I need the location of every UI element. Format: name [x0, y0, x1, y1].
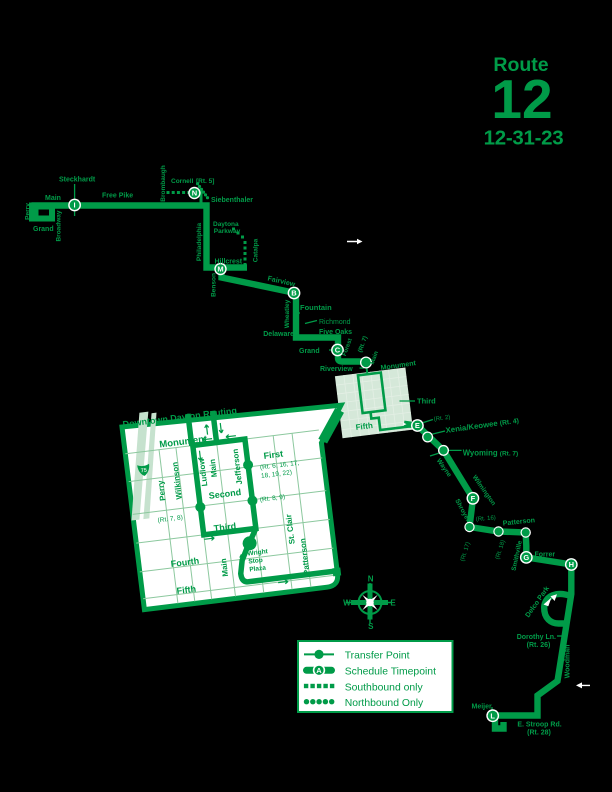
svg-text:Dorothy Ln.: Dorothy Ln.: [517, 634, 556, 641]
svg-text:N: N: [192, 189, 197, 198]
svg-text:S: S: [368, 622, 374, 631]
svg-text:M: M: [217, 265, 223, 274]
svg-text:Catalpa: Catalpa: [252, 238, 259, 262]
svg-text:Free Pike: Free Pike: [102, 193, 133, 200]
svg-text:[Rt. 5]: [Rt. 5]: [196, 178, 214, 185]
svg-text:Brombaugh: Brombaugh: [160, 165, 167, 202]
svg-text:A: A: [316, 666, 322, 675]
svg-text:I: I: [74, 201, 76, 210]
svg-text:W: W: [343, 599, 351, 608]
svg-text:Perry: Perry: [24, 203, 31, 220]
svg-text:Steckhardt: Steckhardt: [59, 177, 96, 184]
svg-text:Wyoming (Rt. 7): Wyoming (Rt. 7): [463, 449, 519, 458]
svg-text:Meijer: Meijer: [472, 704, 493, 711]
svg-text:Wheatley: Wheatley: [284, 299, 291, 328]
svg-text:Fountain: Fountain: [300, 303, 332, 312]
svg-text:B: B: [291, 289, 297, 298]
svg-text:12: 12: [491, 68, 552, 130]
svg-text:E. Stroop Rd.: E. Stroop Rd.: [517, 722, 561, 729]
svg-text:(Rt. 28): (Rt. 28): [527, 730, 551, 737]
svg-text:Daytona: Daytona: [213, 221, 239, 228]
svg-text:L: L: [490, 711, 495, 720]
svg-text:Benson: Benson: [210, 273, 217, 297]
svg-text:Parkway: Parkway: [214, 228, 241, 235]
svg-text:H: H: [569, 560, 574, 569]
svg-text:G: G: [523, 553, 529, 562]
svg-text:Hillcrest: Hillcrest: [215, 259, 243, 266]
svg-text:E: E: [390, 599, 396, 608]
svg-text:Richmond: Richmond: [319, 319, 351, 326]
svg-text:Broadway: Broadway: [55, 210, 62, 241]
svg-text:Forrer: Forrer: [535, 552, 556, 559]
svg-text:Third: Third: [417, 397, 436, 406]
svg-text:C: C: [335, 346, 341, 355]
svg-text:Philadelphia: Philadelphia: [196, 222, 203, 261]
svg-text:Delaware: Delaware: [263, 331, 294, 338]
svg-text:Schedule Timepoint: Schedule Timepoint: [345, 667, 436, 678]
svg-text:Northbound Only: Northbound Only: [345, 698, 424, 709]
svg-text:12-31-23: 12-31-23: [484, 127, 564, 150]
svg-text:Five Oaks: Five Oaks: [319, 329, 352, 336]
svg-text:Transfer Point: Transfer Point: [345, 651, 410, 662]
svg-text:E: E: [415, 421, 420, 430]
svg-text:Riverview: Riverview: [320, 366, 353, 373]
svg-text:Siebenthaler: Siebenthaler: [211, 197, 253, 204]
svg-text:F: F: [471, 494, 476, 503]
svg-text:N: N: [368, 575, 374, 584]
svg-text:Southbound only: Southbound only: [345, 682, 424, 693]
svg-text:75: 75: [141, 468, 148, 475]
svg-text:Cornell: Cornell: [171, 178, 194, 185]
svg-text:Grand: Grand: [33, 226, 54, 233]
svg-text:Woodman: Woodman: [564, 645, 571, 679]
svg-text:Main: Main: [45, 195, 61, 202]
svg-text:(Rt. 26): (Rt. 26): [527, 642, 551, 649]
svg-text:Grand: Grand: [299, 348, 320, 355]
